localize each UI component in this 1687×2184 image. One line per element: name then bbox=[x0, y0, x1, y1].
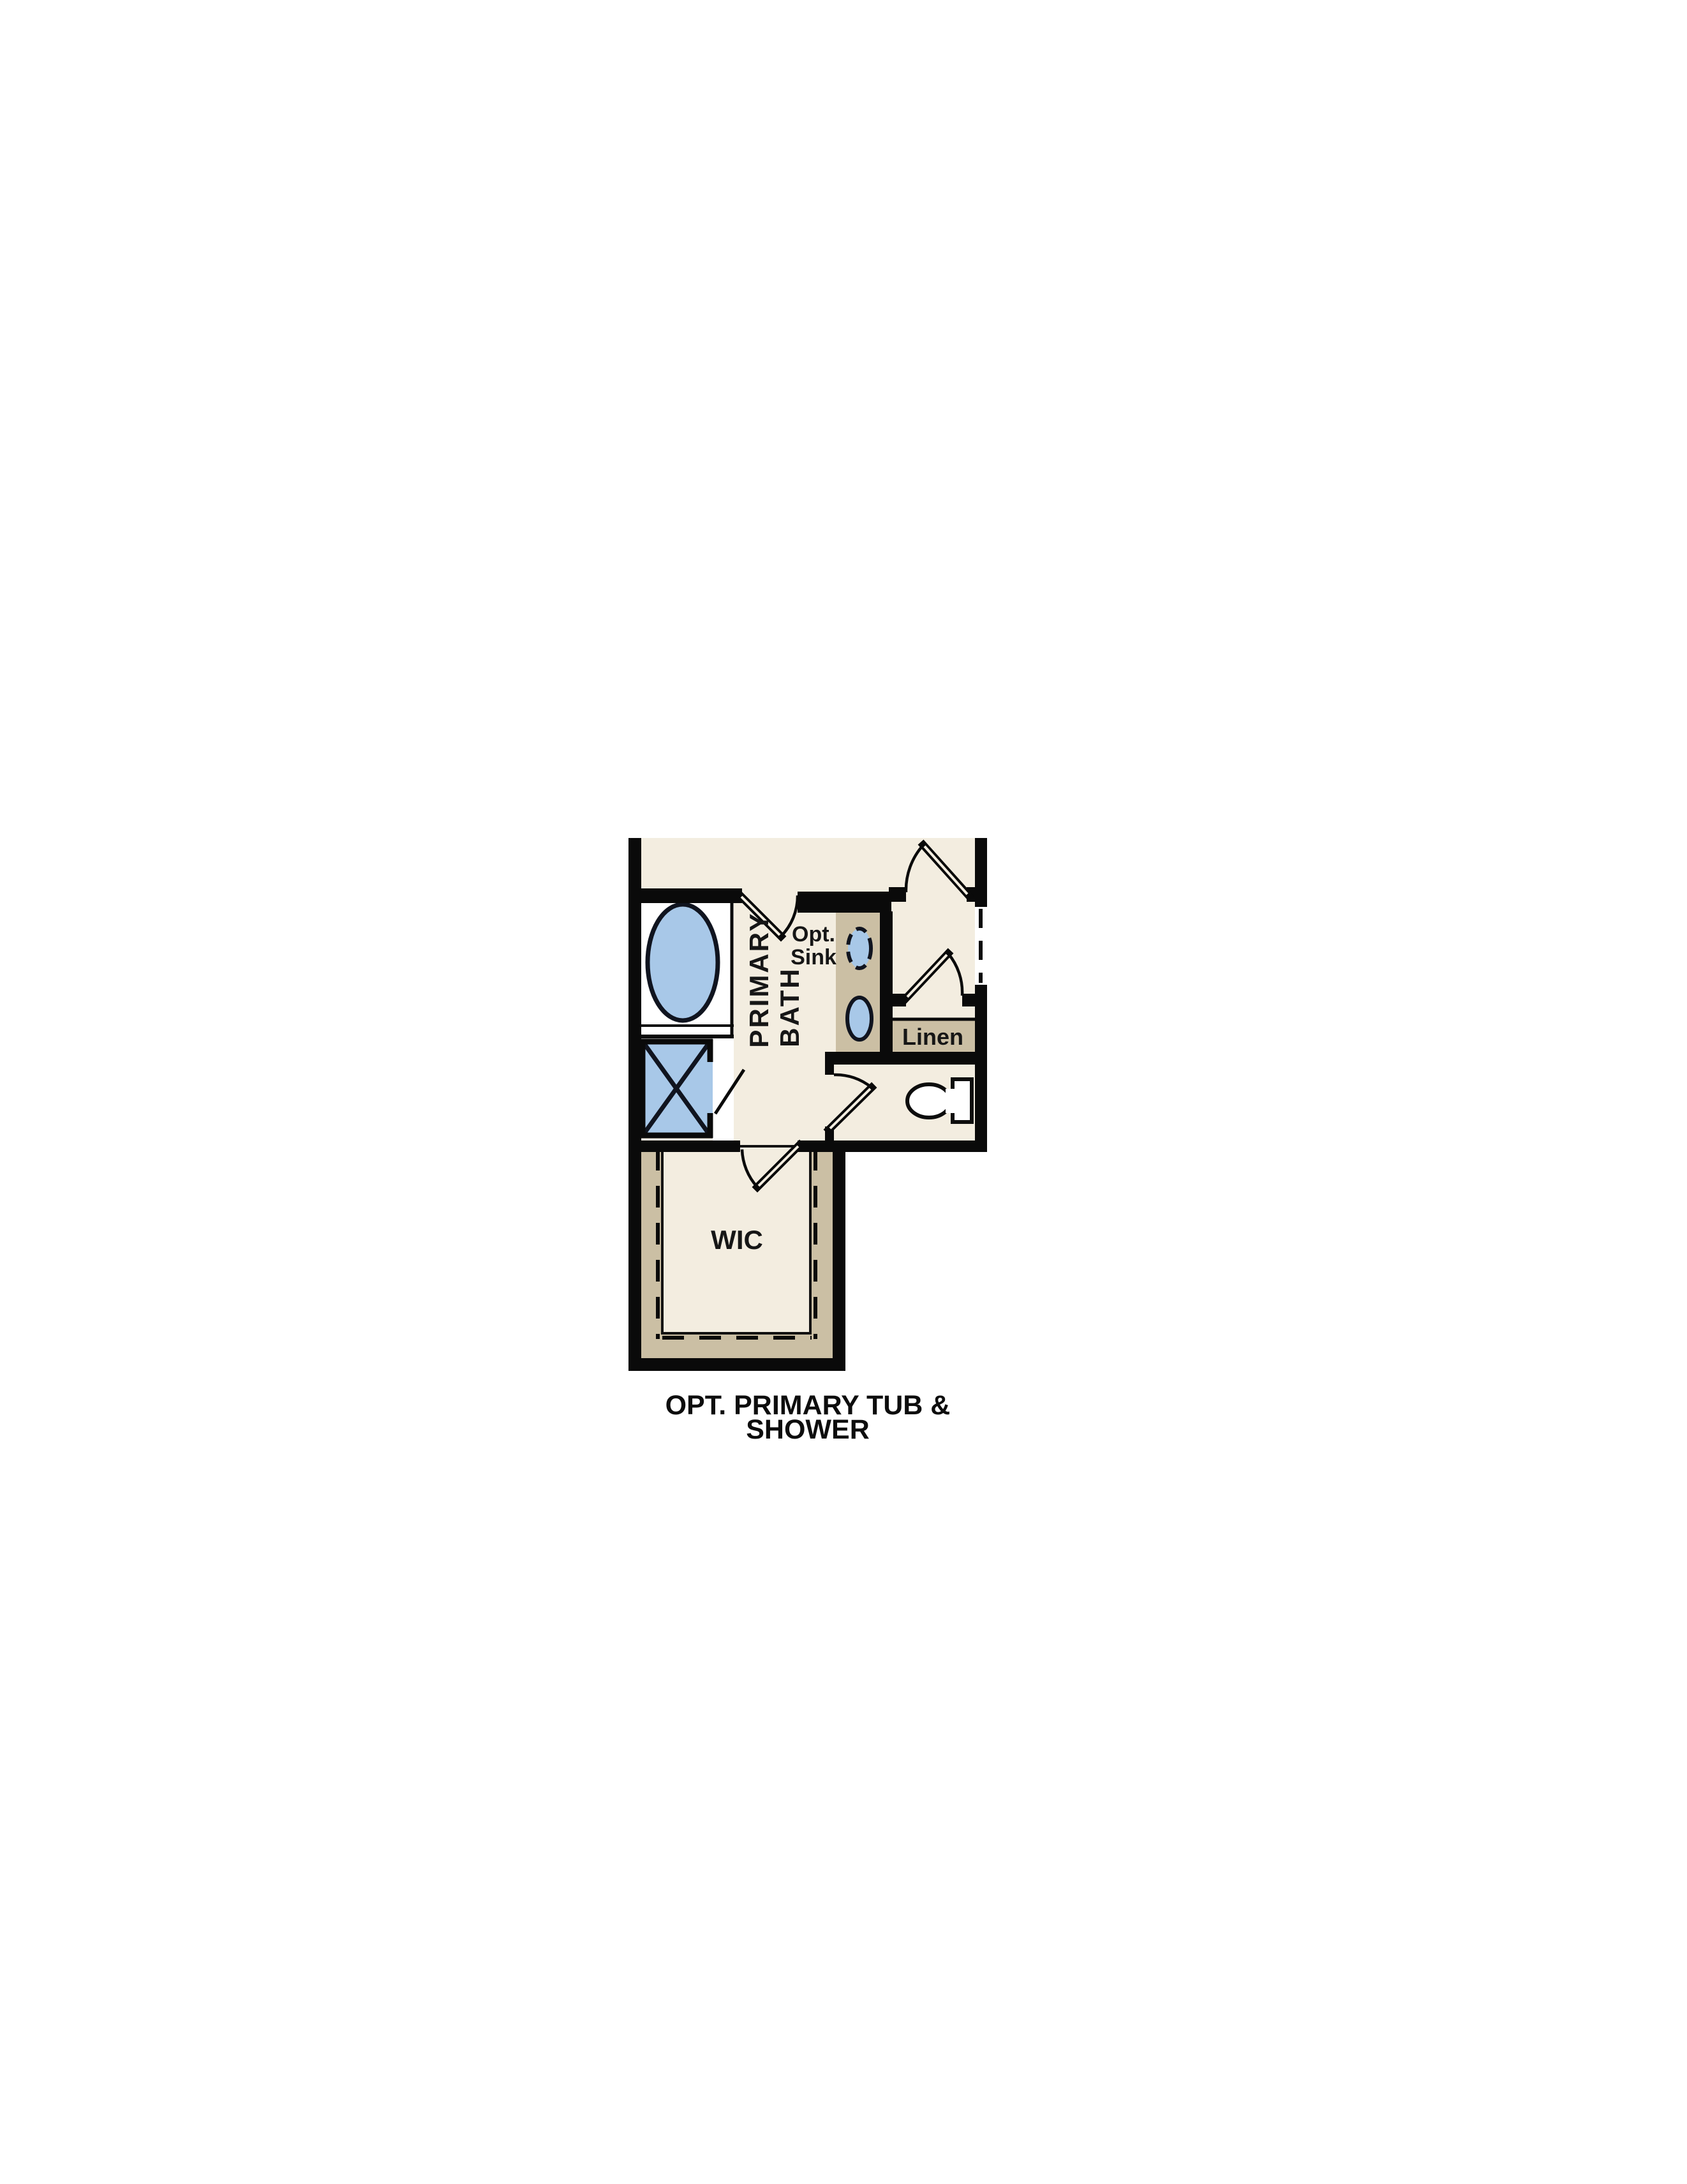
primary-bath-label-line2: BATH bbox=[775, 967, 805, 1047]
linen-label: Linen bbox=[902, 1024, 963, 1050]
wall-wic-bottom bbox=[628, 1358, 845, 1371]
tub bbox=[648, 904, 718, 1021]
shower-area bbox=[640, 1039, 744, 1141]
plan-title-line2: SHOWER bbox=[746, 1414, 870, 1445]
opt-sink-label-line1: Opt. bbox=[792, 922, 835, 946]
wall-right-lower bbox=[975, 983, 987, 1150]
toilet-neck bbox=[946, 1089, 955, 1113]
toilet-tank bbox=[953, 1079, 972, 1122]
wall-vanity-side bbox=[880, 911, 893, 1054]
wall-linen-bottom bbox=[825, 1052, 987, 1065]
wall-left bbox=[628, 838, 641, 1371]
tub-area bbox=[640, 899, 734, 1039]
wic-label: WIC bbox=[711, 1225, 763, 1255]
cased-opening bbox=[975, 907, 987, 985]
floor-plan-page: PRIMARY BATH Opt. Sink Linen WIC OPT. PR… bbox=[0, 0, 1687, 2184]
plan-title: OPT. PRIMARY TUB & SHOWER bbox=[665, 1390, 951, 1445]
optional-sink bbox=[848, 929, 871, 968]
wall-vanity-back bbox=[798, 892, 891, 913]
wall-bath-bottom-right bbox=[798, 1141, 987, 1152]
wall-wc-stub-top bbox=[825, 1052, 834, 1075]
wall-linen-door-jamb-right bbox=[962, 994, 977, 1006]
wall-bath-bottom-left bbox=[628, 1141, 740, 1152]
toilet-bowl bbox=[907, 1084, 951, 1118]
wall-tub-top bbox=[628, 888, 742, 903]
sink bbox=[847, 998, 872, 1040]
primary-bath-label-line1: PRIMARY bbox=[744, 911, 774, 1047]
wall-door-jamb-a bbox=[889, 887, 906, 902]
vanity-area bbox=[836, 913, 882, 1053]
toilet bbox=[907, 1079, 972, 1122]
opt-sink-label-line2: Sink bbox=[791, 945, 836, 969]
wall-right-upper bbox=[975, 838, 987, 909]
floor-plan-svg: PRIMARY BATH Opt. Sink Linen WIC OPT. PR… bbox=[0, 0, 1687, 2184]
wall-wic-right bbox=[833, 1149, 845, 1371]
